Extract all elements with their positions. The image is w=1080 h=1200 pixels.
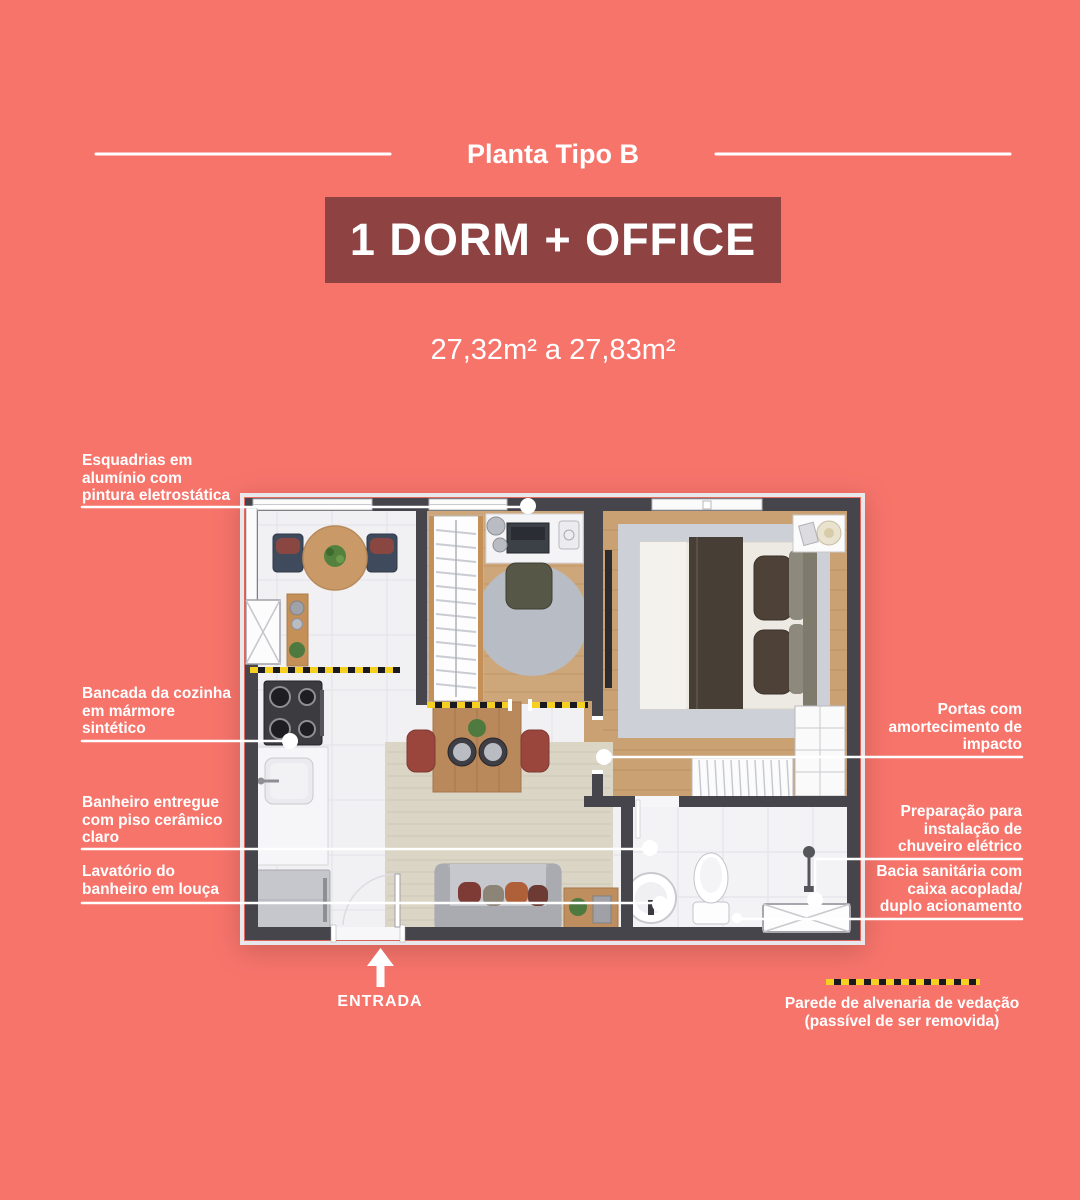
kitchen-shelf: [287, 594, 308, 666]
callout-bancada: Bancada da cozinha em mármore sintético: [82, 685, 231, 738]
plan-type-badge: 1 DORM + OFFICE: [325, 197, 781, 283]
entrada-label: ENTRADA: [300, 993, 460, 1011]
entrada-arrow-icon: [367, 948, 394, 987]
nightstand: [793, 515, 845, 552]
bedroom-bed: [640, 537, 817, 710]
dresser: [795, 706, 845, 796]
living-table: [433, 702, 521, 792]
bed-pillow: [754, 556, 792, 620]
stove: [264, 681, 324, 745]
window-left-upper: [246, 508, 257, 600]
office-wardrobe: [429, 516, 483, 701]
callout-portas: Portas com amortecimento de impacto: [888, 701, 1022, 754]
flyer-canvas: Planta Tipo B 1 DORM + OFFICE 27,32m² a …: [0, 0, 1080, 1200]
dining-table: [303, 526, 367, 590]
fridge: [257, 870, 330, 928]
dining-chair: [521, 730, 549, 772]
floor-plan: [237, 490, 868, 948]
bathroom-sink: [626, 873, 676, 923]
office-chair: [506, 563, 552, 609]
office-desk: [486, 514, 583, 563]
callout-esquadrias: Esquadrias em alumínio com pintura eletr…: [82, 452, 230, 505]
side-table: [564, 888, 618, 930]
plan-type-badge-label: 1 DORM + OFFICE: [350, 214, 756, 266]
kitchen-sink: [257, 747, 328, 865]
kitchen-window: [246, 600, 280, 664]
callout-chuveiro: Preparação para instalação de chuveiro e…: [898, 803, 1022, 856]
dining-chair: [407, 730, 435, 772]
bathroom-window: [763, 904, 850, 932]
shoe-rack: [692, 758, 793, 798]
callout-bacia: Bacia sanitária com caixa acoplada/ dupl…: [876, 863, 1022, 916]
toilet: [693, 853, 729, 924]
page-title: Planta Tipo B: [467, 139, 639, 170]
callout-lavatorio: Lavatório do banheiro em louça: [82, 863, 219, 898]
legend-removable-wall-text: Parede de alvenaria de vedação (passível…: [782, 995, 1022, 1030]
area-range-text: 27,32m² a 27,83m²: [430, 334, 675, 367]
callout-banheiro-piso: Banheiro entregue com piso cerâmico clar…: [82, 794, 222, 847]
sofa: [435, 864, 561, 932]
bed-pillow: [754, 630, 792, 694]
tv: [605, 550, 612, 688]
laptop: [507, 523, 549, 553]
